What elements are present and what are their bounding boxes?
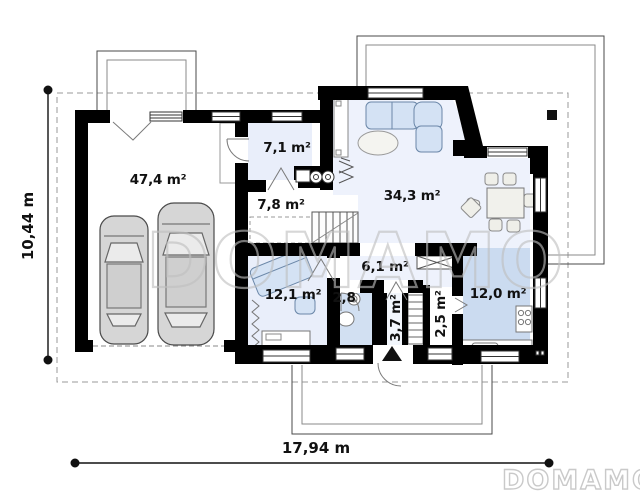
- sideboard: [334, 99, 348, 157]
- room-label-garage: 47,4 m²: [130, 172, 187, 188]
- floor-plan-page: 47,4 m² 7,1 m² 7,8 m² 34,3 m² 6,1 m² 12,…: [0, 0, 640, 502]
- laundry-fixtures: [296, 170, 334, 183]
- room-label-living-room: 34,3 m²: [384, 188, 441, 204]
- floor-plan-drawing: [0, 0, 640, 502]
- stove: [516, 306, 532, 332]
- driveway-outline: [97, 51, 196, 117]
- rug: [358, 131, 398, 155]
- room-label-hallway: 6,1 m²: [361, 259, 408, 275]
- car-left: [100, 216, 148, 344]
- door-main-entrance: [378, 363, 401, 386]
- terrace-column: [547, 110, 557, 120]
- dimension-height-label: 10,44 m: [19, 192, 37, 260]
- car-right: [158, 203, 214, 345]
- room-label-wc: 2,8: [332, 290, 355, 306]
- room-label-vestibule: 3,7 m²: [388, 294, 404, 341]
- dimension-width-label: 17,94 m: [282, 439, 350, 457]
- room-label-utility: 7,8 m²: [257, 197, 304, 213]
- room-label-office: 12,1 m²: [265, 287, 322, 303]
- vestibule-closet: [408, 288, 423, 344]
- porch-outline: [292, 362, 492, 434]
- room-label-kitchen: 12,0 m²: [470, 286, 527, 302]
- room-label-entry-hall: 7,1 m²: [263, 140, 310, 156]
- room-label-pantry: 2,5 m²: [433, 290, 449, 337]
- hall-wardrobe: [417, 256, 457, 269]
